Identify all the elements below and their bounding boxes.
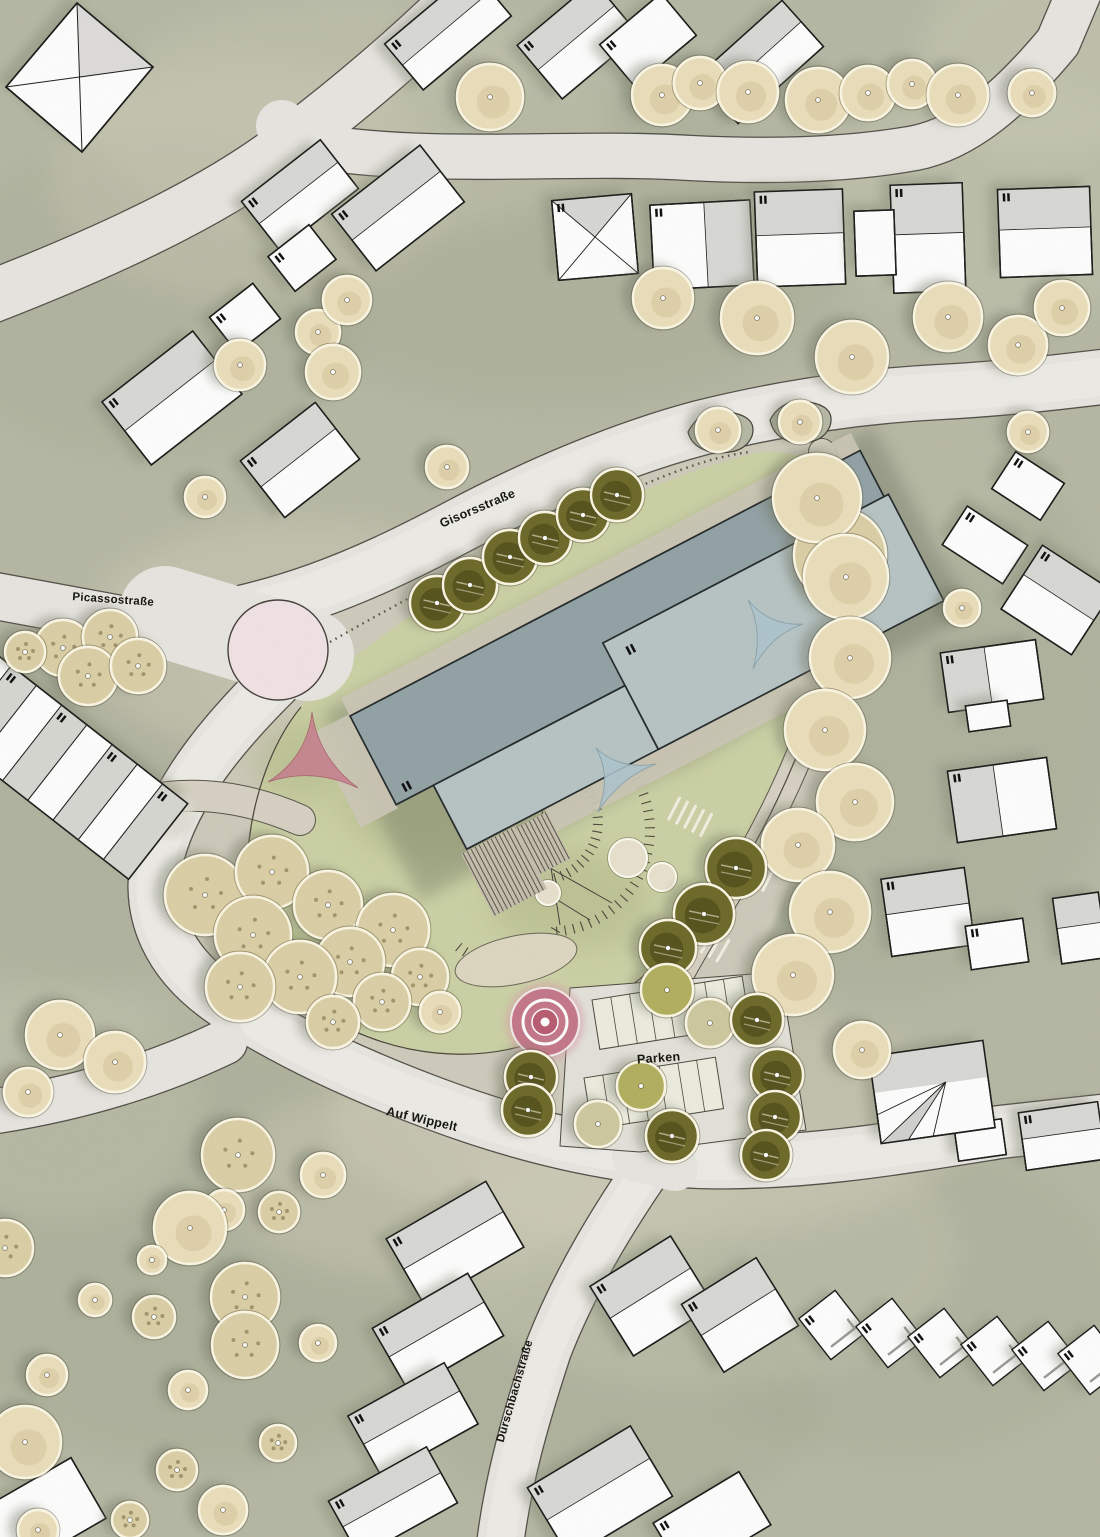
site-plan-svg: Gisorsstraße Picassostraße Auf Wippelt D…	[0, 0, 1100, 1537]
site-plan: Gisorsstraße Picassostraße Auf Wippelt D…	[0, 0, 1100, 1537]
paper-grain	[0, 0, 1100, 1537]
